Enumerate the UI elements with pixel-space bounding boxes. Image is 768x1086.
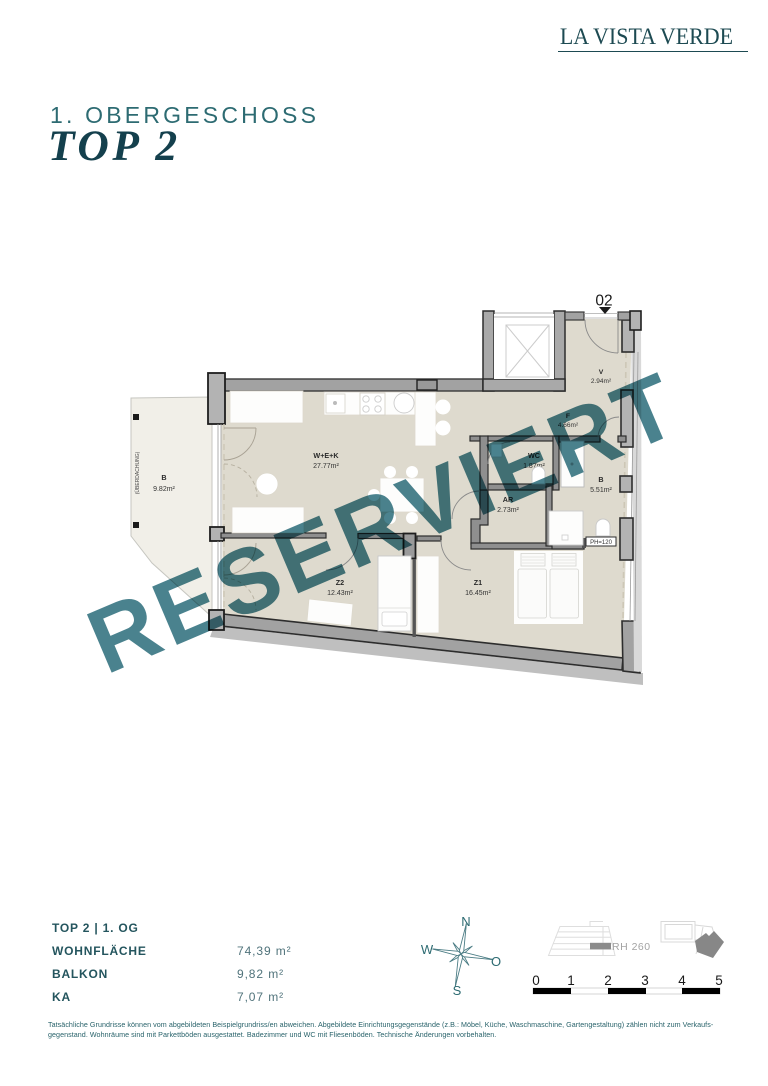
svg-text:2: 2 <box>604 973 612 988</box>
svg-text:(ÜBERDACHUNG): (ÜBERDACHUNG) <box>134 451 141 494</box>
svg-text:W: W <box>421 942 434 957</box>
svg-text:3: 3 <box>641 973 649 988</box>
svg-text:W+E+K: W+E+K <box>313 451 339 460</box>
svg-text:4: 4 <box>678 973 686 988</box>
svg-text:1: 1 <box>567 973 575 988</box>
svg-text:B: B <box>161 473 166 482</box>
svg-text:RH 260: RH 260 <box>612 941 651 953</box>
svg-text:9.82m²: 9.82m² <box>153 486 175 493</box>
svg-text:02: 02 <box>595 293 612 310</box>
svg-text:Z1: Z1 <box>474 578 482 587</box>
svg-text:N: N <box>461 914 470 929</box>
svg-text:S: S <box>453 983 462 998</box>
svg-text:O: O <box>491 954 501 969</box>
svg-text:16.45m²: 16.45m² <box>465 590 491 597</box>
svg-text:PH=120: PH=120 <box>590 540 613 546</box>
svg-text:0: 0 <box>532 973 540 988</box>
svg-text:5: 5 <box>715 973 723 988</box>
svg-text:27.77m²: 27.77m² <box>313 463 339 470</box>
